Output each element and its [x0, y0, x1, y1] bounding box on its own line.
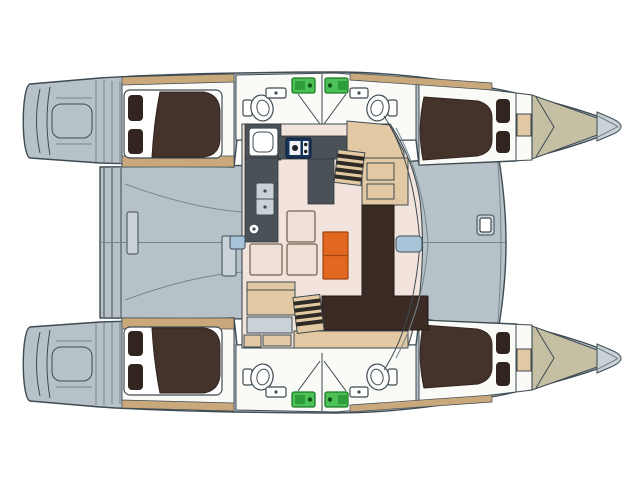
- basin-drain: [357, 91, 360, 94]
- cockpit-door: [230, 236, 245, 249]
- berth-duvet: [152, 92, 220, 157]
- hatch-pane: [480, 218, 491, 232]
- hatch-latch: [328, 83, 332, 87]
- escape-hatch: [325, 78, 348, 93]
- catamaran-deck-plan-page: [0, 0, 640, 480]
- deck-locker: [127, 212, 138, 254]
- escape-hatch: [292, 78, 315, 93]
- basin-drain: [274, 91, 277, 94]
- forepeak-locker: [532, 95, 600, 159]
- stove: [286, 138, 311, 158]
- pillow: [128, 95, 143, 121]
- floor-panel: [287, 244, 317, 275]
- sideboard: [362, 158, 408, 205]
- nav-locker: [244, 335, 261, 347]
- galley-tall-cabinet: [308, 159, 334, 204]
- sink-drain: [263, 205, 266, 208]
- floor-panel: [287, 211, 315, 242]
- foredeck-seat: [396, 236, 422, 252]
- floor-panel: [250, 244, 282, 275]
- bow-step: [517, 114, 531, 136]
- nav-seat: [247, 317, 292, 333]
- nav-locker: [263, 335, 291, 346]
- floor-hatch-pin: [252, 227, 255, 230]
- stove-burner: [304, 143, 307, 146]
- berth-duvet: [420, 97, 492, 160]
- stove-burner: [304, 150, 307, 153]
- stairs-port-hull: [293, 294, 324, 333]
- hatch-pane: [295, 81, 305, 90]
- hatch-latch: [308, 83, 312, 87]
- pillow: [128, 129, 143, 154]
- foredeck-hatch: [477, 215, 494, 235]
- pillow: [496, 99, 510, 123]
- sink-drain: [263, 189, 266, 192]
- stairs-starboard-hull: [334, 150, 365, 186]
- salon-walkway: [294, 331, 408, 348]
- stove-burner: [292, 145, 298, 151]
- pillow: [496, 131, 510, 153]
- catamaran-deck-plan: [0, 0, 640, 480]
- hatch-pane: [338, 81, 348, 90]
- chart-table: [247, 282, 295, 315]
